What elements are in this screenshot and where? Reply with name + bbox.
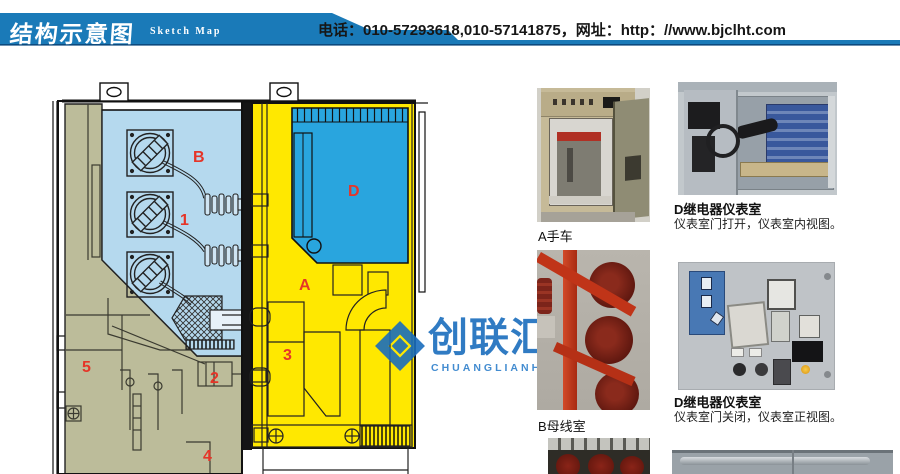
contact-info: 电话：010-57293618,010-57141875，网址：http：//w… [318,19,786,40]
door-window [625,155,641,181]
key-switch [773,359,791,385]
photo-d-open-door [678,82,837,195]
photo-bottom-right-partial [672,450,893,474]
panel-knobs [553,99,597,105]
compartment-wall [242,101,252,450]
control-device [771,311,790,342]
frame-edge [828,96,835,188]
label-tag-2 [749,348,762,357]
panel-edge [672,450,893,453]
handcart-unit [557,132,601,196]
label-item-2: 2 [210,371,219,387]
photo-b-busbar-room [537,250,650,410]
relay-modules [766,104,830,164]
switchgear-cross-section-diagram [0,74,460,474]
photo-d-open-description: 仪表室门打开，仪表室内视图。 [674,215,842,232]
ct-face-3 [620,456,644,474]
label-item-5: 5 [82,360,91,376]
black-window [792,341,823,362]
company-logo-icon [374,320,426,372]
label-item-3: 3 [283,348,292,364]
handcart-red-stripe [557,132,601,141]
photo-a-caption: A手车 [538,226,573,245]
handle-bar [680,457,870,465]
photo-d-closed-description: 仪表室门关闭，仪表室正视图。 [674,408,842,425]
handcart-slot [567,148,573,182]
panel-meter [767,279,796,310]
door-screw-1 [824,273,831,280]
small-meter [799,315,820,338]
photo-bottom-left-partial [548,438,650,474]
page-title: 结构示意图 [9,15,136,49]
side-insulator [537,278,552,314]
panel-strip [548,438,650,450]
cabinet-outer-wall [53,101,66,474]
photo-d-closed-door [678,262,835,390]
cabinet-base [541,212,635,222]
side-box [537,316,555,338]
page-subtitle: Sketch Map [150,26,221,37]
label-item-4: 4 [203,449,212,465]
label-tag-1 [731,348,744,357]
ct-face-1 [556,454,580,474]
panel-seam [792,450,794,474]
label-instrument-room: D [348,184,360,200]
photo-a-handcart [537,88,650,222]
recorder-meter [727,301,769,349]
control-knob-2 [755,363,768,376]
mimic-symbol-2 [701,295,712,308]
label-busbar-room: B [193,150,205,166]
photo-b-caption: B母线室 [538,416,586,435]
page-header: 结构示意图 Sketch Map 电话：010-57293618,010-571… [0,0,900,50]
catalog-page: { "header": { "title": "结构示意图", "subtitl… [0,0,900,474]
label-breaker-room: A [299,278,311,294]
control-knob-1 [733,363,746,376]
compartment-floor [549,196,611,204]
indicator-lamp [801,365,810,374]
door-cable-loop [706,124,740,158]
terminal-strip [740,162,830,177]
label-item-1: 1 [180,213,189,229]
ct-face-2 [588,454,614,474]
mimic-symbol-1 [701,277,712,290]
door-screw-2 [824,371,831,378]
